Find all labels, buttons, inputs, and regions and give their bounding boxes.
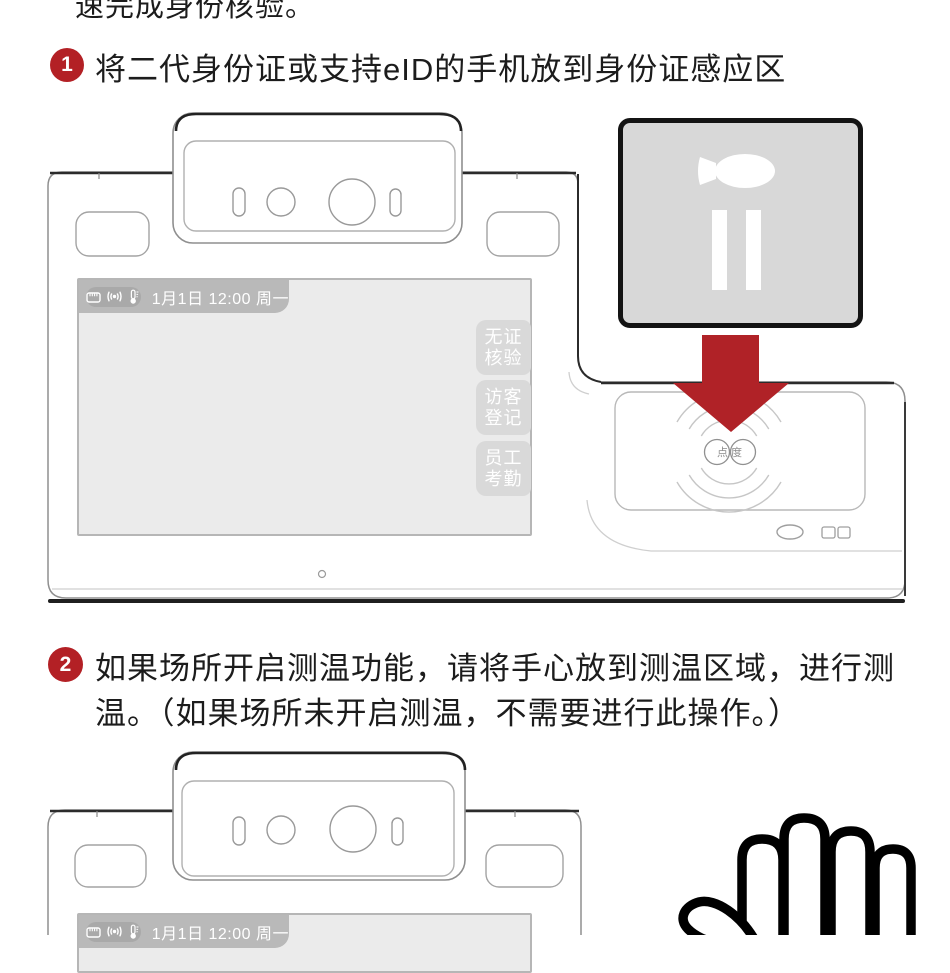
mic-slot [392,818,403,845]
sensor-pad-logo: 点度 [706,443,756,461]
screen-button-no-id-verify: 无证 核验 [476,320,531,375]
card-bar [746,210,761,290]
ir-camera-lens [267,188,295,216]
ir-camera-lens [267,816,295,844]
step-2-line-2: 温。（如果场所未开启测温，不需要进行此操作。） [95,691,895,736]
button-label-line: 访客 [485,387,523,408]
main-camera-lens [330,806,376,852]
status-icon-pill [86,922,141,942]
step-2-badge: 2 [48,647,83,682]
device-1-camera-module [173,113,462,243]
id-card-symbols [623,123,858,323]
step-1-text: 将二代身份证或支持eID的手机放到身份证感应区 [95,47,786,92]
mic-slot [390,189,401,216]
lan-port-icon [86,291,101,303]
status-icon-pill [86,287,141,307]
lan-port-icon [86,926,101,938]
status-date: 1月1日 12:00 周一 [152,920,289,944]
mic-slot [233,188,245,216]
device-2-camera-module [173,752,465,880]
thermometer-icon [128,924,140,939]
step-1-badge: 1 [50,48,84,82]
wireless-signal-icon [106,925,123,938]
card-photo-blob [715,154,775,188]
mic-slot [233,817,245,845]
step-2-line-1: 如果场所开启测温功能，请将手心放到测温区域，进行测 [95,646,895,691]
port-slot [838,527,850,538]
screen-button-visitor-register: 访客 登记 [476,380,531,435]
palm-hand-icon [683,818,911,935]
button-label-line: 核验 [485,348,523,369]
id-card-graphic [618,118,863,328]
status-date: 1月1日 12:00 周一 [152,285,289,309]
screen-button-staff-attendance: 员工 考勤 [476,441,531,496]
button-label-line: 无证 [485,327,523,348]
manual-page: { "intro": { "clipped_line": "速完成身份核验。" … [0,0,950,935]
status-bar: 1月1日 12:00 周一 [79,280,289,313]
status-bar: 1月1日 12:00 周一 [79,915,289,948]
button-label-line: 登记 [485,408,523,429]
thermometer-icon [128,289,140,304]
device-1-screen: 1月1日 12:00 周一 [77,278,532,536]
main-camera-lens [329,179,375,225]
step-2-text: 如果场所开启测温功能，请将手心放到测温区域，进行测 温。（如果场所未开启测温，不… [95,646,895,736]
power-indicator [777,525,803,539]
port-slot [822,527,835,538]
device-2-screen: 1月1日 12:00 周一 [77,913,532,973]
intro-clipped-text: 速完成身份核验。 [75,0,315,25]
card-bar [712,210,727,290]
button-label-line: 员工 [485,448,523,469]
wireless-signal-icon [106,290,123,303]
button-label-line: 考勤 [485,469,523,490]
